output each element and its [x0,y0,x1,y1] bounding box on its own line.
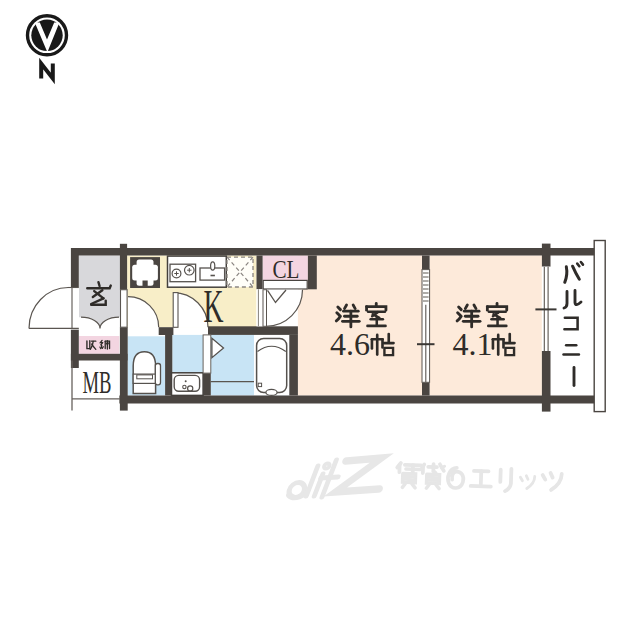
svg-text:K: K [204,280,224,332]
svg-text:MB: MB [83,365,112,400]
svg-text:4.6: 4.6 [330,326,370,362]
svg-text:CL: CL [273,256,300,283]
svg-text:4.1: 4.1 [453,326,493,362]
